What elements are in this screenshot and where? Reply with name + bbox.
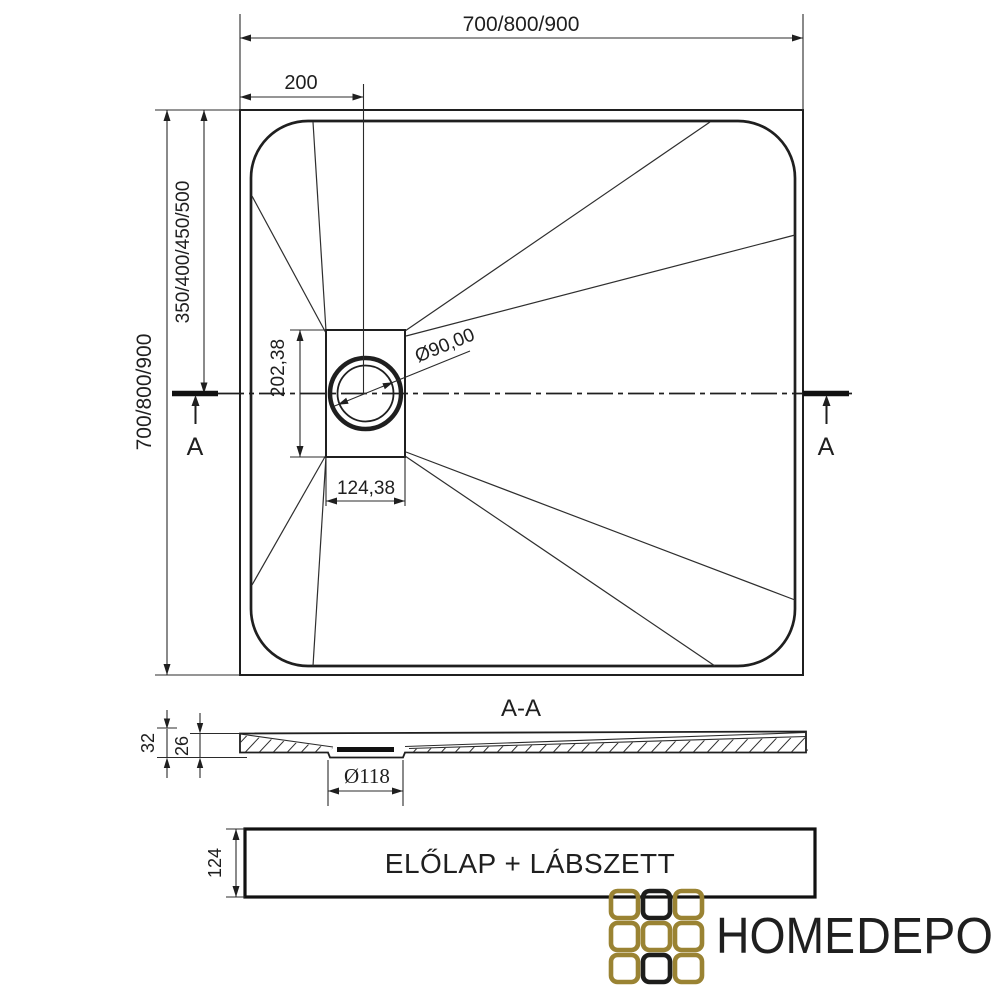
logo-grid-square (675, 955, 702, 982)
dim-total-height-label: 32 (138, 733, 158, 753)
logo: HOME DEPO (611, 891, 993, 982)
dim-width-label: 700/800/900 (463, 13, 580, 36)
dim-center-label: 350/400/450/500 (173, 181, 194, 324)
shower-tray-drawing: 700/800/900 200 700/800/900 350/400/450/… (0, 0, 1000, 1000)
section-marker-a-left: A (187, 433, 204, 461)
section-marker-a-right: A (818, 433, 835, 461)
drain-cover-plate (337, 747, 394, 752)
hatch-line (210, 728, 240, 760)
dim-inner-height-label: 26 (172, 736, 192, 756)
section-title: A-A (501, 695, 541, 722)
section-cut-markers (172, 394, 849, 425)
dim-section-drain-diameter-label: Ø118 (344, 764, 390, 788)
logo-grid-square (611, 923, 638, 950)
panel-row: ELŐLAP + LÁBSZETT 124 (205, 829, 815, 897)
dim-offset-label: 200 (284, 72, 317, 94)
dim-drain-height-label: 202,38 (268, 339, 289, 397)
logo-text-secondary: DEPO (856, 907, 993, 964)
hatch-line (812, 728, 842, 760)
dim-height-label: 700/800/900 (133, 334, 156, 451)
logo-grid-square (675, 923, 702, 950)
logo-grid-icon (611, 891, 702, 982)
dimension-lines (164, 35, 804, 676)
logo-grid-square (643, 923, 670, 950)
section-view: A-A 32 26 Ø118 (138, 695, 842, 806)
logo-grid-square (611, 955, 638, 982)
dim-drain-width-label: 124,38 (337, 478, 395, 499)
logo-grid-square (643, 955, 670, 982)
technical-drawing-page: 700/800/900 200 700/800/900 350/400/450/… (0, 0, 1000, 1000)
dim-panel-height-label: 124 (205, 848, 225, 878)
hatch-line (812, 728, 842, 760)
logo-text-primary: HOME (716, 907, 855, 964)
hatch-line (210, 728, 240, 760)
top-view: 700/800/900 200 700/800/900 350/400/450/… (133, 13, 852, 675)
panel-label: ELŐLAP + LÁBSZETT (385, 848, 675, 879)
tray-outer-edge (240, 110, 803, 675)
